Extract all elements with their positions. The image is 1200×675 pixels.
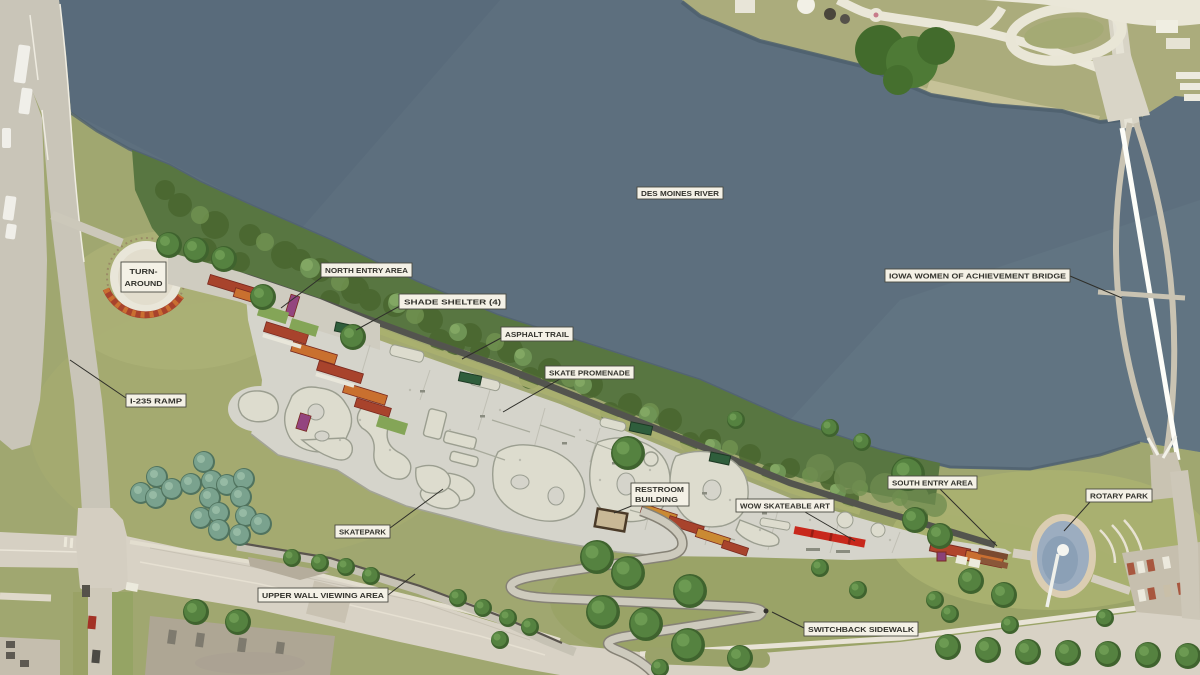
svg-text:SKATE PROMENADE: SKATE PROMENADE xyxy=(549,369,630,378)
svg-text:ROTARY PARK: ROTARY PARK xyxy=(1090,492,1149,501)
svg-text:SKATEPARK: SKATEPARK xyxy=(339,528,387,537)
svg-text:SWITCHBACK SIDEWALK: SWITCHBACK SIDEWALK xyxy=(808,625,915,634)
svg-text:AROUND: AROUND xyxy=(125,279,164,288)
svg-text:BUILDING: BUILDING xyxy=(635,495,678,504)
svg-text:NORTH ENTRY AREA: NORTH ENTRY AREA xyxy=(325,266,409,275)
svg-text:I-235 RAMP: I-235 RAMP xyxy=(130,397,182,406)
svg-text:UPPER WALL VIEWING AREA: UPPER WALL VIEWING AREA xyxy=(262,591,385,600)
svg-text:DES MOINES RIVER: DES MOINES RIVER xyxy=(641,189,720,198)
svg-text:RESTROOM: RESTROOM xyxy=(635,485,684,494)
svg-text:TURN-: TURN- xyxy=(130,267,159,276)
svg-text:ASPHALT TRAIL: ASPHALT TRAIL xyxy=(505,330,569,339)
svg-text:IOWA WOMEN OF ACHIEVEMENT BRID: IOWA WOMEN OF ACHIEVEMENT BRIDGE xyxy=(889,272,1066,281)
svg-text:SHADE SHELTER (4): SHADE SHELTER (4) xyxy=(404,298,502,307)
svg-text:WOW SKATEABLE ART: WOW SKATEABLE ART xyxy=(740,502,830,511)
svg-text:SOUTH ENTRY AREA: SOUTH ENTRY AREA xyxy=(892,479,974,488)
